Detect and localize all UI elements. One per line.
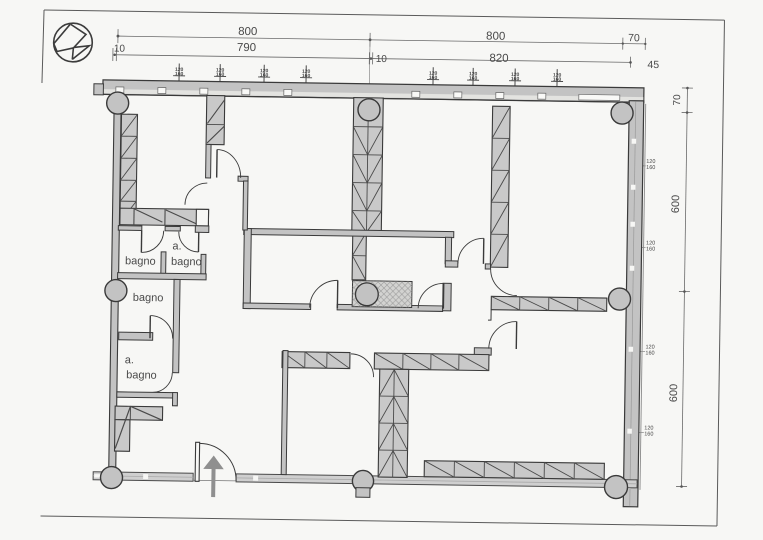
svg-text:820: 820 [489, 53, 508, 65]
svg-text:70: 70 [628, 32, 640, 44]
svg-text:bagno: bagno [125, 255, 156, 267]
svg-text:160: 160 [645, 350, 654, 356]
svg-text:a.: a. [125, 354, 134, 366]
svg-text:160: 160 [511, 76, 520, 82]
svg-text:10: 10 [114, 44, 126, 55]
svg-text:45: 45 [647, 59, 659, 71]
svg-text:160: 160 [469, 76, 478, 82]
svg-text:bagno: bagno [171, 256, 202, 268]
svg-text:bagno: bagno [126, 369, 157, 381]
svg-text:160: 160 [646, 246, 655, 252]
svg-text:bagno: bagno [133, 292, 164, 304]
svg-text:800: 800 [486, 31, 505, 43]
svg-text:a.: a. [172, 240, 181, 252]
svg-text:790: 790 [237, 42, 256, 54]
svg-text:600: 600 [668, 384, 680, 403]
svg-text:70: 70 [672, 94, 683, 106]
svg-text:10: 10 [376, 54, 388, 65]
svg-text:160: 160 [175, 71, 184, 77]
svg-text:160: 160 [429, 75, 438, 81]
svg-text:160: 160 [646, 165, 655, 171]
svg-text:800: 800 [238, 26, 257, 38]
svg-text:160: 160 [260, 72, 269, 78]
svg-text:160: 160 [302, 73, 311, 79]
svg-text:160: 160 [553, 77, 562, 83]
svg-text:160: 160 [644, 431, 653, 437]
svg-text:600: 600 [670, 195, 682, 214]
svg-text:160: 160 [216, 72, 225, 78]
